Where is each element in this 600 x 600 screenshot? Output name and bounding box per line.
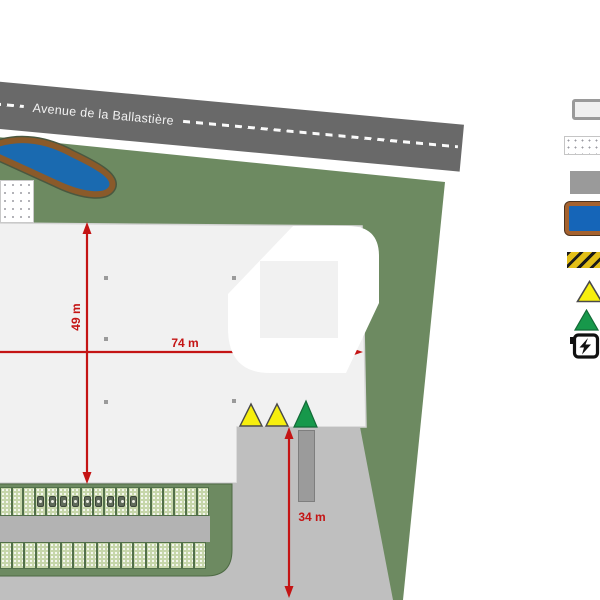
legend-green-triangle-marker — [574, 309, 599, 331]
green-triangle-marker — [294, 401, 317, 427]
dimension-yard-label: 34 m — [292, 510, 332, 524]
road-centerline — [183, 120, 458, 149]
road-centerline — [0, 102, 24, 108]
yellow-triangle-marker — [240, 404, 262, 426]
road-name-label: Avenue de la Ballastière — [32, 100, 174, 127]
legend-building-outline-swatch — [572, 99, 600, 120]
site-plan-canvas: 49 m 74 m 34 m Avenue de la Ballastière — [0, 0, 600, 600]
dimension-depth-label: 49 m — [69, 297, 83, 337]
legend-retention-basin-swatch — [565, 202, 600, 235]
legend-future-extension-swatch — [564, 136, 600, 155]
yellow-triangle-marker — [266, 404, 288, 426]
legend-ev-charging-icon — [570, 333, 600, 359]
dimension-width-label: 74 m — [165, 336, 205, 350]
legend-yellow-triangle-marker — [576, 280, 600, 303]
legend-paved-area-swatch — [570, 171, 600, 194]
legend-hatched-strip-swatch — [567, 252, 600, 268]
